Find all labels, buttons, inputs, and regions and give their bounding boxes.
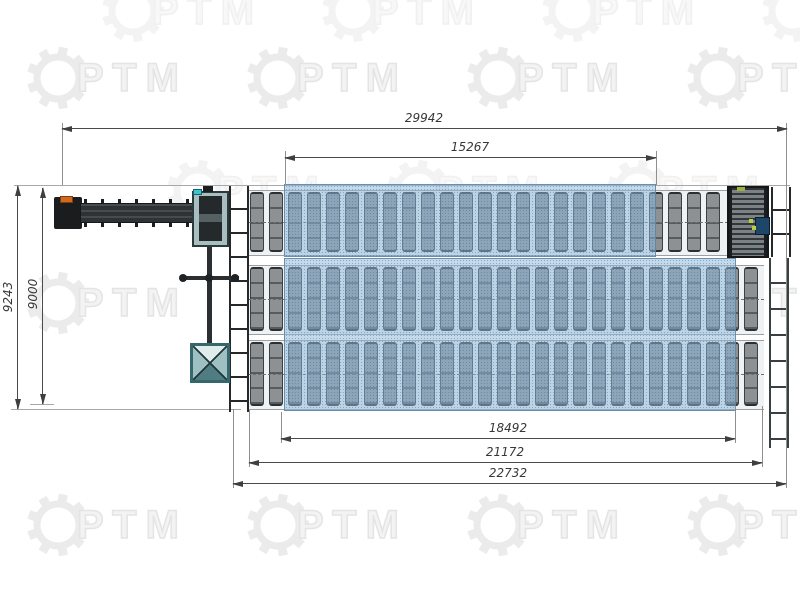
gear-icon bbox=[100, 0, 166, 44]
watermark-logo: РТМ bbox=[245, 45, 408, 111]
junction-machine-core bbox=[199, 196, 222, 241]
watermark-logo: РТМ bbox=[100, 0, 263, 44]
dim-text-18492: 18492 bbox=[468, 421, 548, 435]
arrow-right-icon bbox=[725, 436, 736, 442]
watermark-logo: РТМ bbox=[25, 270, 188, 336]
watermark-text: РТМ bbox=[372, 0, 483, 34]
watermark-text: РТМ bbox=[77, 503, 188, 548]
technical-drawing-canvas: РТМРТМРТМРТМРТМРТМРТМРТМРТМРТМРТМРТМРТМР… bbox=[0, 0, 800, 600]
arrow-right-icon bbox=[752, 460, 763, 466]
dim-line-9243 bbox=[17, 186, 18, 409]
watermark-text: РТМ bbox=[737, 56, 800, 101]
arrow-right-icon bbox=[646, 155, 657, 161]
dim-line-15267 bbox=[285, 157, 656, 158]
watermark-logo: РТМ bbox=[25, 45, 188, 111]
watermark-logo: РТМ bbox=[245, 492, 408, 558]
gear-icon bbox=[245, 45, 311, 111]
watermark-text: РТМ bbox=[152, 0, 263, 34]
watermark-logo: РТМ bbox=[540, 0, 703, 44]
dim-text-9243: 9243 bbox=[1, 267, 15, 327]
dim-text-22732: 22732 bbox=[468, 466, 548, 480]
arrow-up-icon bbox=[40, 187, 46, 198]
arrow-right-icon bbox=[776, 481, 787, 487]
gear-icon bbox=[540, 0, 606, 44]
ext-29942-left bbox=[62, 123, 63, 185]
active-zone-lines-2-3 bbox=[284, 258, 736, 411]
watermark-text: РТМ bbox=[737, 503, 800, 548]
gear-icon bbox=[25, 492, 91, 558]
gear-icon bbox=[465, 492, 531, 558]
gear-icon bbox=[465, 45, 531, 111]
dim-line-29942 bbox=[62, 128, 787, 129]
stacker-teal-unit bbox=[755, 217, 770, 235]
watermark-text: РТМ bbox=[517, 56, 628, 101]
dim-line-21172 bbox=[249, 462, 762, 463]
arrow-left-icon bbox=[248, 460, 259, 466]
dim-line-9000 bbox=[42, 188, 43, 404]
arrow-left-icon bbox=[232, 481, 243, 487]
stacker-yellow-dot-2 bbox=[752, 226, 756, 230]
ext-right-overall bbox=[786, 123, 787, 488]
arrow-up-icon bbox=[15, 185, 21, 196]
arrow-left-icon bbox=[284, 155, 295, 161]
arrow-left-icon bbox=[280, 436, 291, 442]
stacker-yellow-dot-1 bbox=[749, 219, 753, 223]
cross-arm-right-dot bbox=[231, 274, 239, 282]
junction-cyan-marker bbox=[193, 189, 202, 195]
left-transfer-rail bbox=[229, 186, 249, 412]
watermark-logo: РТМ bbox=[25, 492, 188, 558]
ext-22732-left bbox=[233, 409, 234, 488]
watermark-logo: РТМ bbox=[685, 45, 800, 111]
stacker-yellow-mark-top bbox=[737, 187, 745, 191]
watermark-logo: РТМ bbox=[760, 0, 800, 44]
dim-text-21172: 21172 bbox=[465, 445, 545, 459]
gear-icon bbox=[685, 492, 751, 558]
watermark-text: РТМ bbox=[297, 56, 408, 101]
gear-icon bbox=[25, 45, 91, 111]
dim-text-15267: 15267 bbox=[430, 140, 510, 154]
watermark-text: РТМ bbox=[297, 503, 408, 548]
gear-icon bbox=[320, 0, 386, 44]
watermark-logo: РТМ bbox=[465, 45, 628, 111]
watermark-logo: РТМ bbox=[320, 0, 483, 44]
arrow-down-icon bbox=[40, 394, 46, 405]
dim-text-29942: 29942 bbox=[384, 111, 464, 125]
arrow-down-icon bbox=[15, 399, 21, 410]
cross-arm-center-dot bbox=[205, 274, 213, 282]
watermark-logo: РТМ bbox=[685, 492, 800, 558]
dim-text-9000: 9000 bbox=[26, 264, 40, 324]
gear-icon bbox=[685, 45, 751, 111]
vertical-push-rod bbox=[207, 247, 212, 345]
ext-21172-left bbox=[249, 410, 250, 467]
right-ladder-line-1 bbox=[771, 187, 791, 257]
watermark-logo: РТМ bbox=[465, 492, 628, 558]
watermark-text: РТМ bbox=[77, 281, 188, 326]
arrow-right-icon bbox=[777, 126, 788, 132]
feeder-orange-marker bbox=[60, 196, 73, 203]
gear-icon bbox=[760, 0, 800, 44]
watermark-text: РТМ bbox=[592, 0, 703, 34]
watermark-text: РТМ bbox=[77, 56, 188, 101]
active-zone-line-1 bbox=[284, 184, 656, 257]
dim-line-22732 bbox=[233, 483, 786, 484]
arrow-left-icon bbox=[61, 126, 72, 132]
cross-arm-left-dot bbox=[179, 274, 187, 282]
drawing-bottom-left-line bbox=[11, 409, 241, 410]
watermark-text: РТМ bbox=[517, 503, 628, 548]
dim-line-18492 bbox=[281, 438, 735, 439]
gear-icon bbox=[245, 492, 311, 558]
junction-top-cap bbox=[203, 186, 213, 192]
ext-21172-right bbox=[762, 406, 763, 467]
pyramid-hopper bbox=[190, 343, 230, 383]
